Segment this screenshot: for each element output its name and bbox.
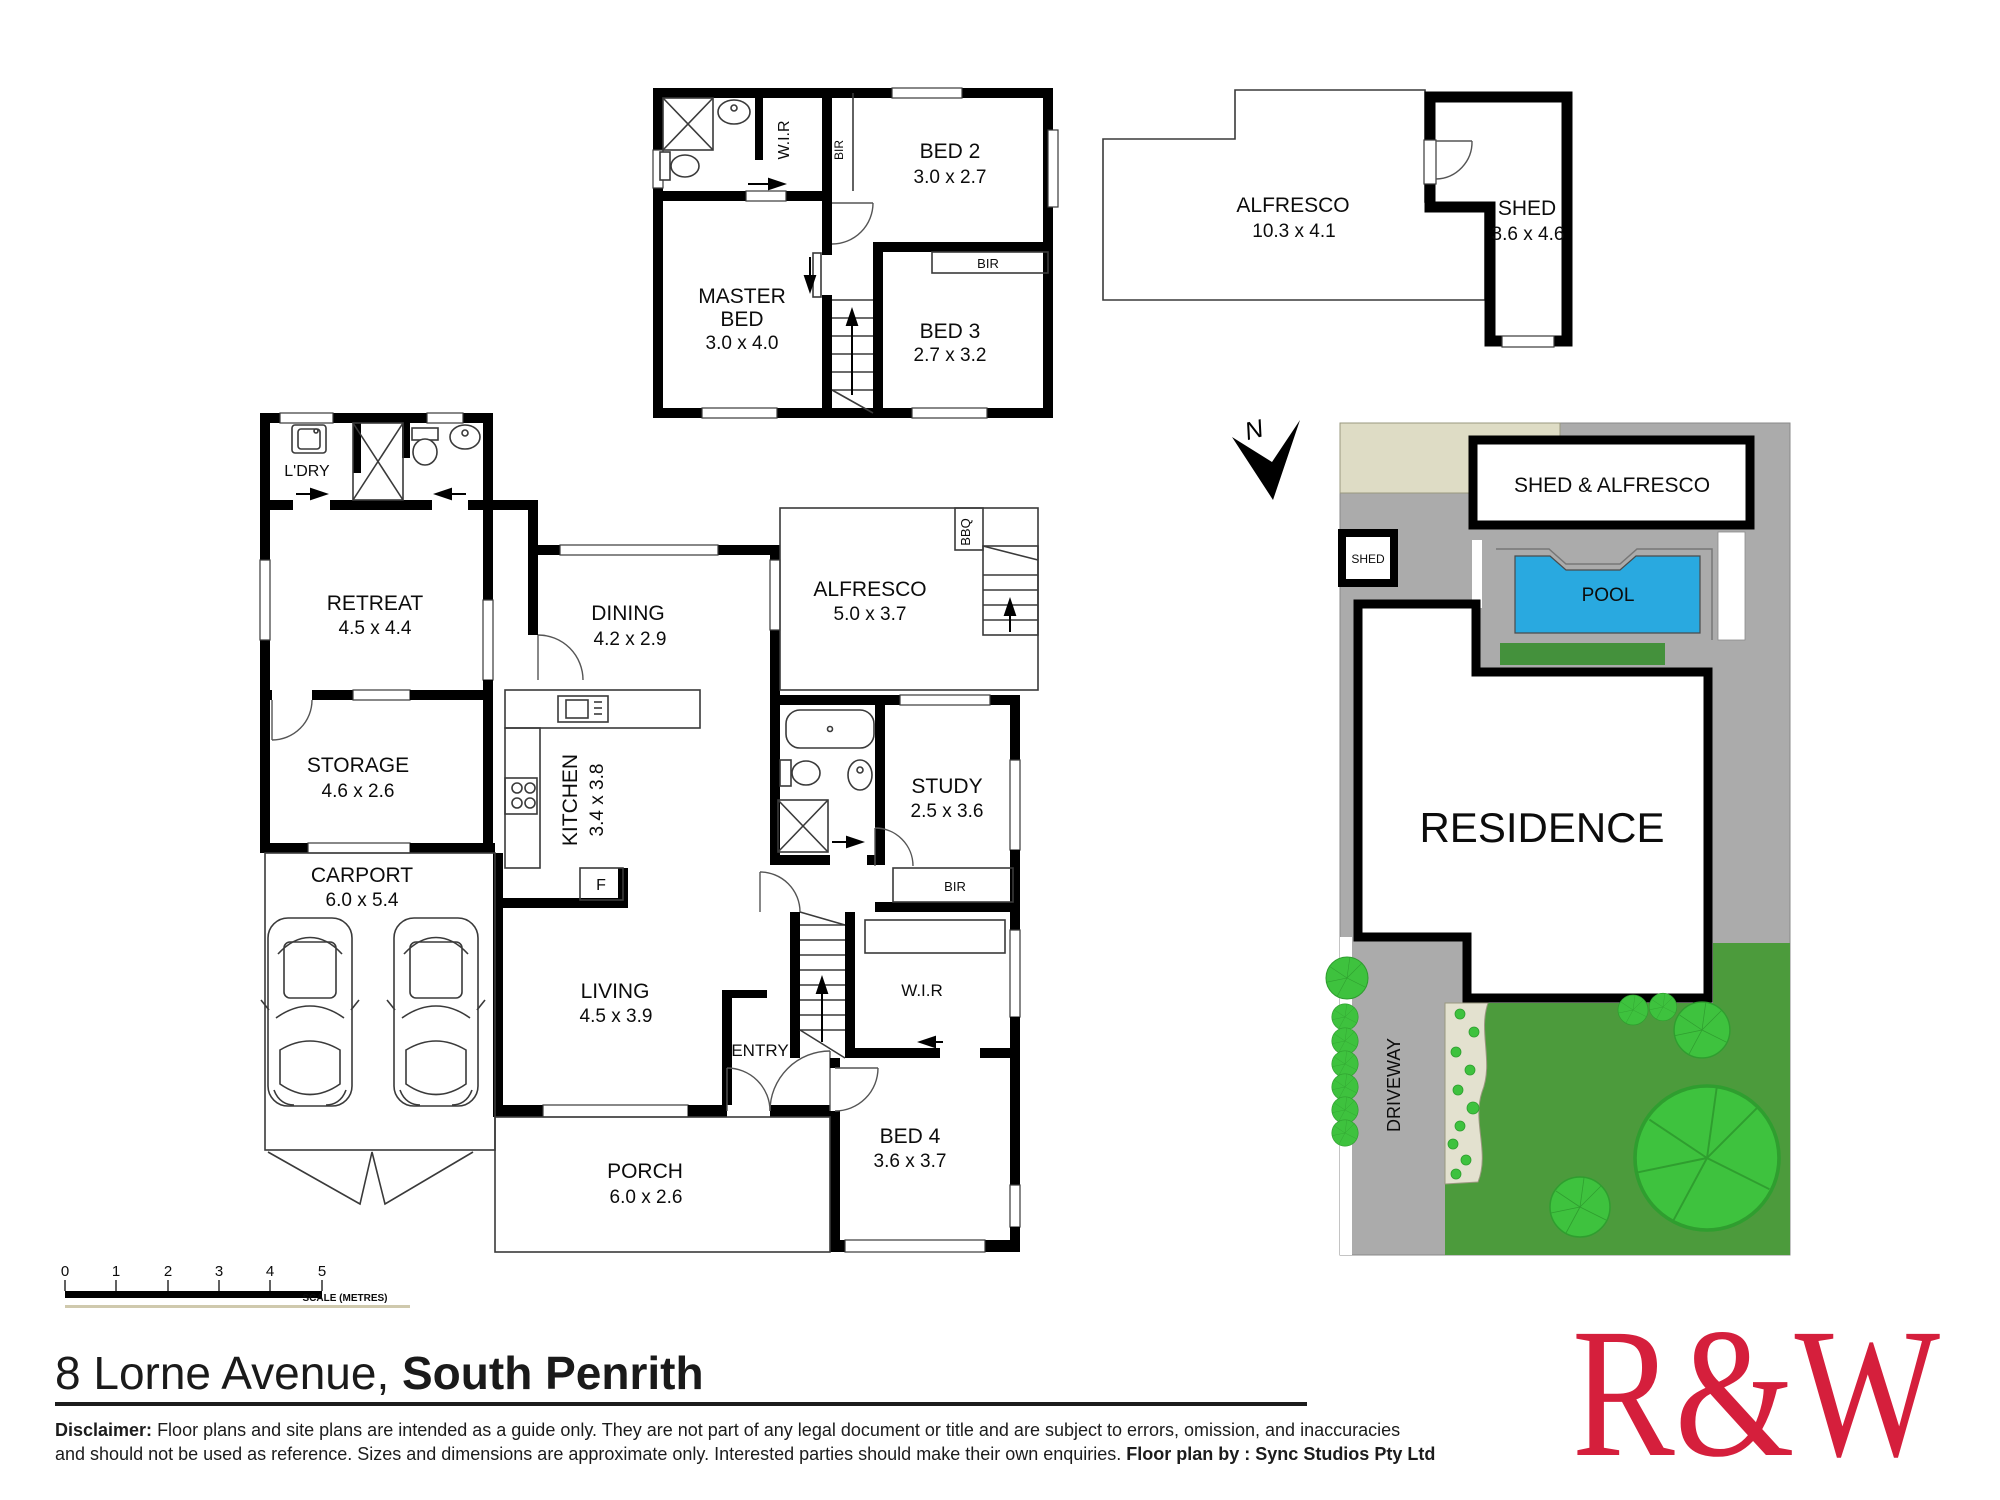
svg-text:LIVING: LIVING [581,980,650,1003]
label-site-pool: POOL [1582,585,1635,606]
svg-text:RETREAT: RETREAT [327,592,424,615]
floor-plan-sheet: W.I.R BIR BED 2 3.0 x 2.7 MASTER BED 3.0… [0,0,2000,1500]
svg-text:6.0 x 5.4: 6.0 x 5.4 [326,890,399,911]
svg-text:5.0 x 3.7: 5.0 x 3.7 [834,604,907,625]
svg-text:3.0 x 2.7: 3.0 x 2.7 [914,167,987,188]
site-plan: SHED & ALFRESCO SHED POOL RESIDENCE DRIV… [1232,414,1790,1255]
svg-text:4.5 x 4.4: 4.5 x 4.4 [339,618,412,639]
scale-tick-5: 5 [318,1263,326,1280]
room-label-porch: PORCH 6.0 x 2.6 [607,1160,683,1208]
ground-stairs [790,912,845,1058]
scale-tick-2: 2 [164,1263,172,1280]
svg-text:STUDY: STUDY [911,775,982,798]
car-icon [387,918,485,1106]
svg-text:2.5 x 3.6: 2.5 x 3.6 [911,801,984,822]
disclaimer-line1: Disclaimer: Floor plans and site plans a… [55,1420,1400,1440]
scale-tick-3: 3 [215,1263,223,1280]
svg-text:DINING: DINING [591,602,665,625]
label-upper-bir-closet: BIR [977,256,999,271]
scale-tick-4: 4 [266,1263,274,1280]
svg-text:BED: BED [720,308,763,331]
label-site-shed: SHED [1351,552,1385,566]
pool-garden-strip [1500,643,1665,665]
svg-text:STORAGE: STORAGE [307,754,409,777]
label-kitchen: KITCHEN [559,754,582,846]
scale-tick-0: 0 [61,1263,69,1280]
scale-bar: 0 1 2 3 4 5 SCALE (METRES) [61,1263,410,1308]
svg-text:BED 2: BED 2 [920,140,981,163]
label-ground-wir: W.I.R [901,981,943,1000]
svg-text:BED 3: BED 3 [920,320,981,343]
disclaimer-line2: and should not be used as reference. Siz… [55,1444,1435,1464]
page-title: 8 Lorne Avenue, South Penrith [55,1347,704,1399]
north-arrow-icon: N [1232,414,1300,500]
label-upper-bir-side: BIR [832,140,846,160]
room-label-dining: DINING 4.2 x 2.9 [591,602,666,650]
label-ldry: L'DRY [284,463,330,480]
label-driveway: DRIVEWAY [1384,1038,1404,1132]
room-label-living: LIVING 4.5 x 3.9 [580,980,653,1027]
svg-text:3.0 x 4.0: 3.0 x 4.0 [706,333,779,354]
svg-text:PORCH: PORCH [607,1160,683,1183]
laundry-fixtures [292,423,480,500]
svg-text:BED 4: BED 4 [880,1125,941,1148]
svg-text:4.2 x 2.9: 4.2 x 2.9 [594,629,667,650]
svg-text:10.3 x 4.1: 10.3 x 4.1 [1252,221,1335,242]
label-kitchen-dims: 3.4 x 3.8 [587,764,608,837]
outbuilding-plan: ALFRESCO 10.3 x 4.1 SHED 3.6 x 4.6 [1103,90,1567,347]
room-label-study: STUDY 2.5 x 3.6 [911,775,984,822]
floor-plan-drawing: W.I.R BIR BED 2 3.0 x 2.7 MASTER BED 3.0… [0,0,2000,1500]
svg-text:CARPORT: CARPORT [311,864,413,887]
scale-caption: SCALE (METRES) [303,1293,388,1304]
svg-text:6.0 x 2.6: 6.0 x 2.6 [610,1187,683,1208]
svg-text:4.5 x 3.9: 4.5 x 3.9 [580,1006,653,1027]
svg-text:2.7 x 3.2: 2.7 x 3.2 [914,345,987,366]
rw-logo: R&W [1572,1291,1940,1496]
upper-floor-plan: W.I.R BIR BED 2 3.0 x 2.7 MASTER BED 3.0… [653,88,1058,418]
svg-text:ALFRESCO: ALFRESCO [813,578,926,601]
car-icon [261,918,359,1106]
ground-bathroom-fixtures [778,710,874,852]
svg-text:MASTER: MASTER [698,285,786,308]
scale-tick-1: 1 [112,1263,120,1280]
svg-text:SHED: SHED [1498,197,1556,220]
label-upper-wir: W.I.R [776,120,793,159]
label-north: N [1242,414,1267,446]
label-site-shed-alfresco: SHED & ALFRESCO [1514,474,1710,497]
svg-text:3.6 x 4.6: 3.6 x 4.6 [1492,224,1565,245]
room-label-storage: STORAGE 4.6 x 2.6 [307,754,409,802]
svg-text:ALFRESCO: ALFRESCO [1236,194,1349,217]
room-label-retreat: RETREAT 4.5 x 4.4 [327,592,424,639]
label-bbq: BBQ [958,518,973,545]
label-ground-bir: BIR [944,879,966,894]
room-label-carport: CARPORT 6.0 x 5.4 [311,864,413,911]
svg-text:4.6 x 2.6: 4.6 x 2.6 [322,781,395,802]
room-label-ground-alfresco: ALFRESCO 5.0 x 3.7 [813,578,926,625]
divider [55,1402,1307,1406]
label-site-residence: RESIDENCE [1419,804,1664,851]
label-entry: ENTRY [731,1041,788,1060]
room-label-bed4: BED 4 3.6 x 3.7 [874,1125,947,1172]
label-fridge: F [596,877,606,894]
ground-floor-plan: L'DRY RETREAT 4.5 x 4.4 STORAGE 4.6 x 2.… [260,413,1038,1252]
footer: 8 Lorne Avenue, South Penrith Disclaimer… [55,1291,1940,1496]
svg-text:3.6 x 3.7: 3.6 x 3.7 [874,1151,947,1172]
